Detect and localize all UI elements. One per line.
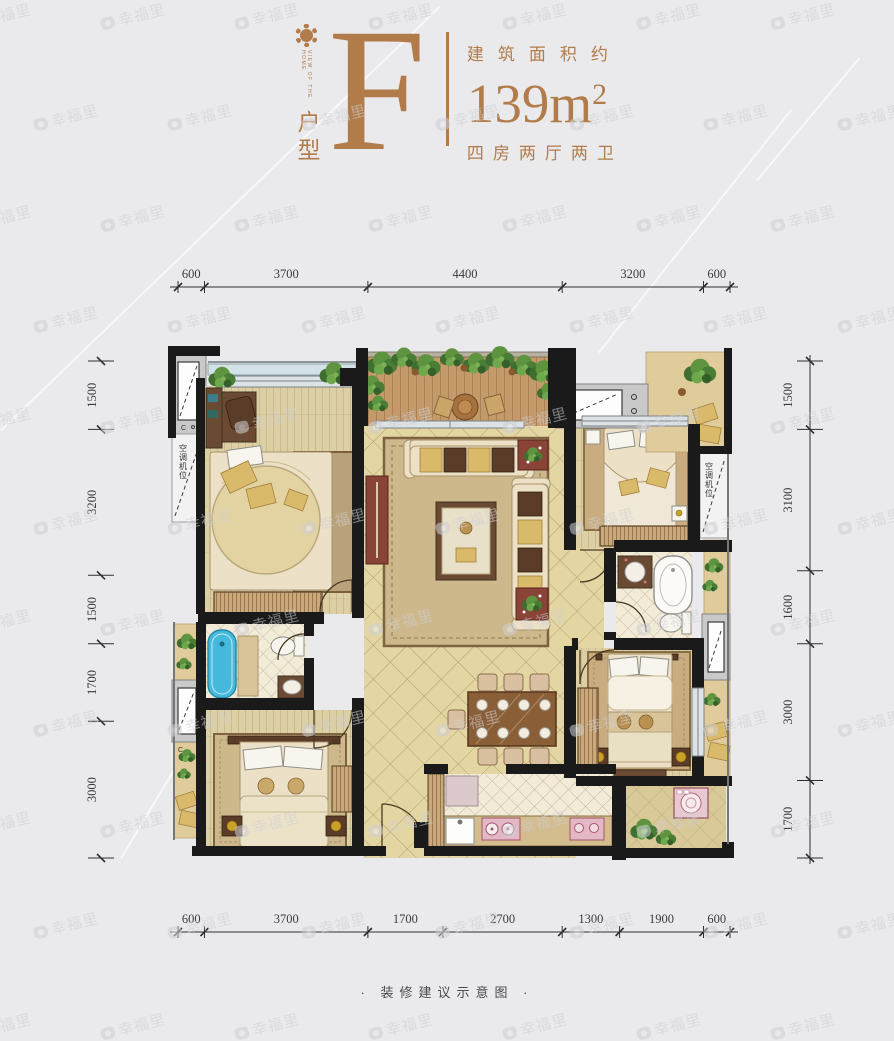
wardrobe xyxy=(578,688,598,766)
rooms-label: 四房两厅两卫 xyxy=(467,139,623,164)
dimension-label: 1500 xyxy=(85,383,99,408)
title-block: VIEW OF THE HOME 户型 F 建筑面积约 139m2 四房两厅两卫 xyxy=(288,24,623,166)
bedroom-bottomleft xyxy=(205,710,352,856)
master-bedroom xyxy=(576,648,692,779)
toilet xyxy=(271,636,304,656)
plant-stand xyxy=(516,588,548,620)
dimension-label: 3000 xyxy=(781,700,795,725)
bed xyxy=(210,446,332,590)
toilet xyxy=(660,612,691,634)
kitchen-cabinet xyxy=(428,774,444,848)
dimension-label: 1900 xyxy=(649,912,674,926)
dining-table xyxy=(468,692,556,746)
bed xyxy=(228,736,340,850)
right-balcony xyxy=(702,540,730,782)
washing-machine xyxy=(674,788,708,818)
flower-logo-icon xyxy=(295,24,318,47)
prep-sink xyxy=(570,818,604,840)
wardrobe xyxy=(332,766,352,812)
plant-stand xyxy=(518,440,548,470)
dimension-label: 4400 xyxy=(453,267,478,281)
unit-type-label: 户型 xyxy=(289,110,323,166)
dimension-label: 1700 xyxy=(393,912,418,926)
vanity xyxy=(278,676,306,698)
dimension-label: 2700 xyxy=(490,912,515,926)
dimension-label: 3100 xyxy=(781,488,795,513)
kitchen-sink xyxy=(446,818,474,844)
bathtub xyxy=(654,556,692,614)
wardrobe xyxy=(214,592,322,614)
area-label: 建筑面积约 xyxy=(467,40,623,65)
vanity xyxy=(618,556,652,588)
bedroom-topleft xyxy=(204,362,358,614)
unit-letter: F xyxy=(328,30,426,166)
dimension-label: 1300 xyxy=(578,912,603,926)
living-room xyxy=(366,438,550,646)
divider xyxy=(446,32,449,146)
dimension-label: 3700 xyxy=(274,912,299,926)
dimension-label: 3200 xyxy=(85,490,99,515)
dimension-label: 3000 xyxy=(85,777,99,802)
logo-subtext: VIEW OF THE HOME xyxy=(300,50,312,106)
dimension-label: 600 xyxy=(182,912,201,926)
dimension-label: 1500 xyxy=(85,597,99,622)
dimension-label: 3700 xyxy=(274,267,299,281)
dimension-label: 3200 xyxy=(620,267,645,281)
bath-shelf xyxy=(238,636,258,696)
stove xyxy=(482,818,520,840)
plan-caption: · 装修建议示意图 · xyxy=(0,982,894,1001)
dimension-label: 600 xyxy=(182,267,201,281)
tv-cabinet xyxy=(366,476,388,564)
dimension-label: 1600 xyxy=(781,595,795,620)
dining-chair xyxy=(478,674,497,691)
svg-text:C: C xyxy=(181,425,186,432)
bathtub-blue xyxy=(208,630,236,698)
svg-text:空调机位: 空调机位 xyxy=(179,443,188,480)
ac-platform-right: 空调机位 xyxy=(700,452,728,538)
page: 幸福里幸福里幸福里幸福里幸福里幸福里幸福里幸福里幸福里幸福里幸福里幸福里幸福里幸… xyxy=(0,0,894,1041)
dimension-label: 1700 xyxy=(85,670,99,695)
master-bathroom xyxy=(616,552,692,640)
shared-bathroom xyxy=(205,624,306,700)
sofa xyxy=(404,440,534,478)
laundry xyxy=(626,786,726,850)
svg-text:空调机位: 空调机位 xyxy=(705,461,714,498)
dimension-label: 1700 xyxy=(781,807,795,832)
coffee-table xyxy=(436,502,496,580)
living-balcony xyxy=(359,346,560,428)
dimension-label: 1500 xyxy=(781,383,795,408)
dimension-label: 600 xyxy=(707,912,726,926)
area-value: 139m2 xyxy=(467,69,623,130)
dimension-label: 600 xyxy=(707,267,726,281)
